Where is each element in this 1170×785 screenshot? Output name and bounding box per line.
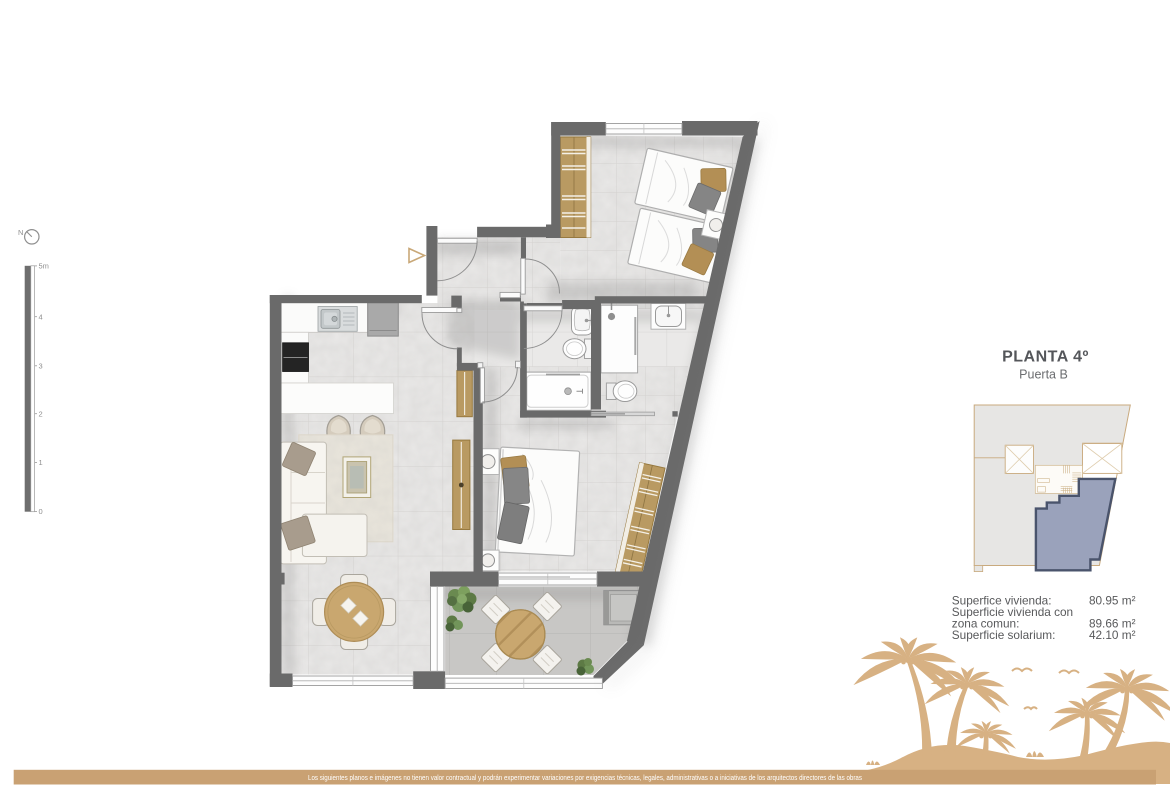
- svg-text:Los siguientes planos e imágen: Los siguientes planos e imágenes no tien…: [308, 775, 862, 782]
- svg-text:42.10 m²: 42.10 m²: [1089, 628, 1136, 642]
- svg-text:PLANTA 4º: PLANTA 4º: [1002, 349, 1089, 366]
- svg-text:N: N: [18, 228, 23, 237]
- svg-text:1: 1: [39, 458, 43, 467]
- svg-text:4: 4: [39, 312, 43, 321]
- svg-text:Puerta B: Puerta B: [1019, 368, 1068, 382]
- svg-text:3: 3: [39, 361, 43, 370]
- svg-text:Superficie solarium:: Superficie solarium:: [952, 628, 1056, 642]
- svg-text:5m: 5m: [39, 262, 49, 271]
- svg-text:2: 2: [39, 409, 43, 418]
- svg-text:0: 0: [39, 507, 43, 516]
- svg-text:80.95 m²: 80.95 m²: [1089, 593, 1136, 607]
